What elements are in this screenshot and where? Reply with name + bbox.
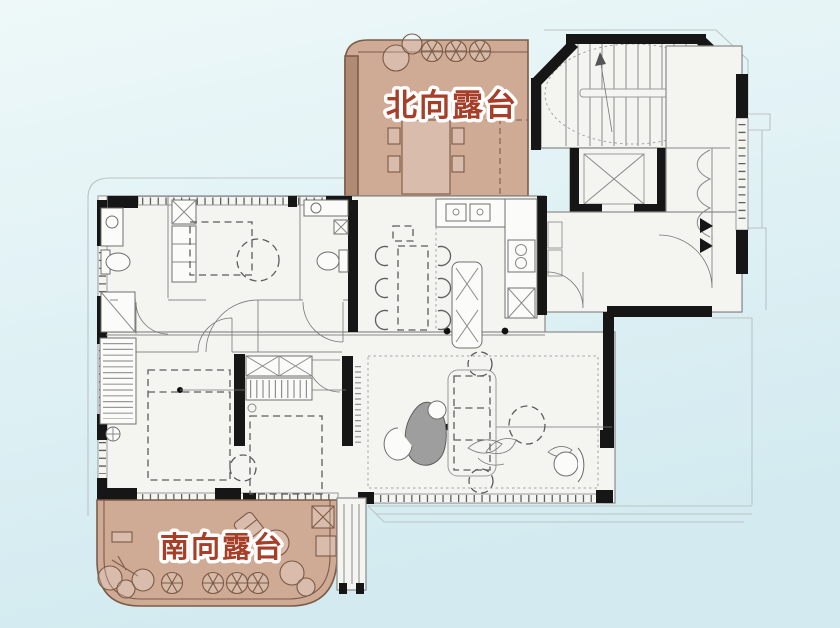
structural-pier	[337, 498, 366, 594]
south-terrace-label: 南向露台	[160, 530, 284, 564]
floor-plan-image: 北向露台	[0, 0, 840, 628]
kitchen-island	[452, 262, 482, 348]
north-terrace: 北向露台	[345, 34, 528, 196]
north-terrace-wall	[345, 56, 358, 196]
lower-rooms-floor	[100, 332, 615, 503]
south-terrace: 南向露台	[97, 500, 337, 606]
north-terrace-label: 北向露台	[386, 88, 518, 124]
elevator	[570, 148, 666, 214]
floor-plan-svg: 北向露台	[0, 0, 840, 628]
